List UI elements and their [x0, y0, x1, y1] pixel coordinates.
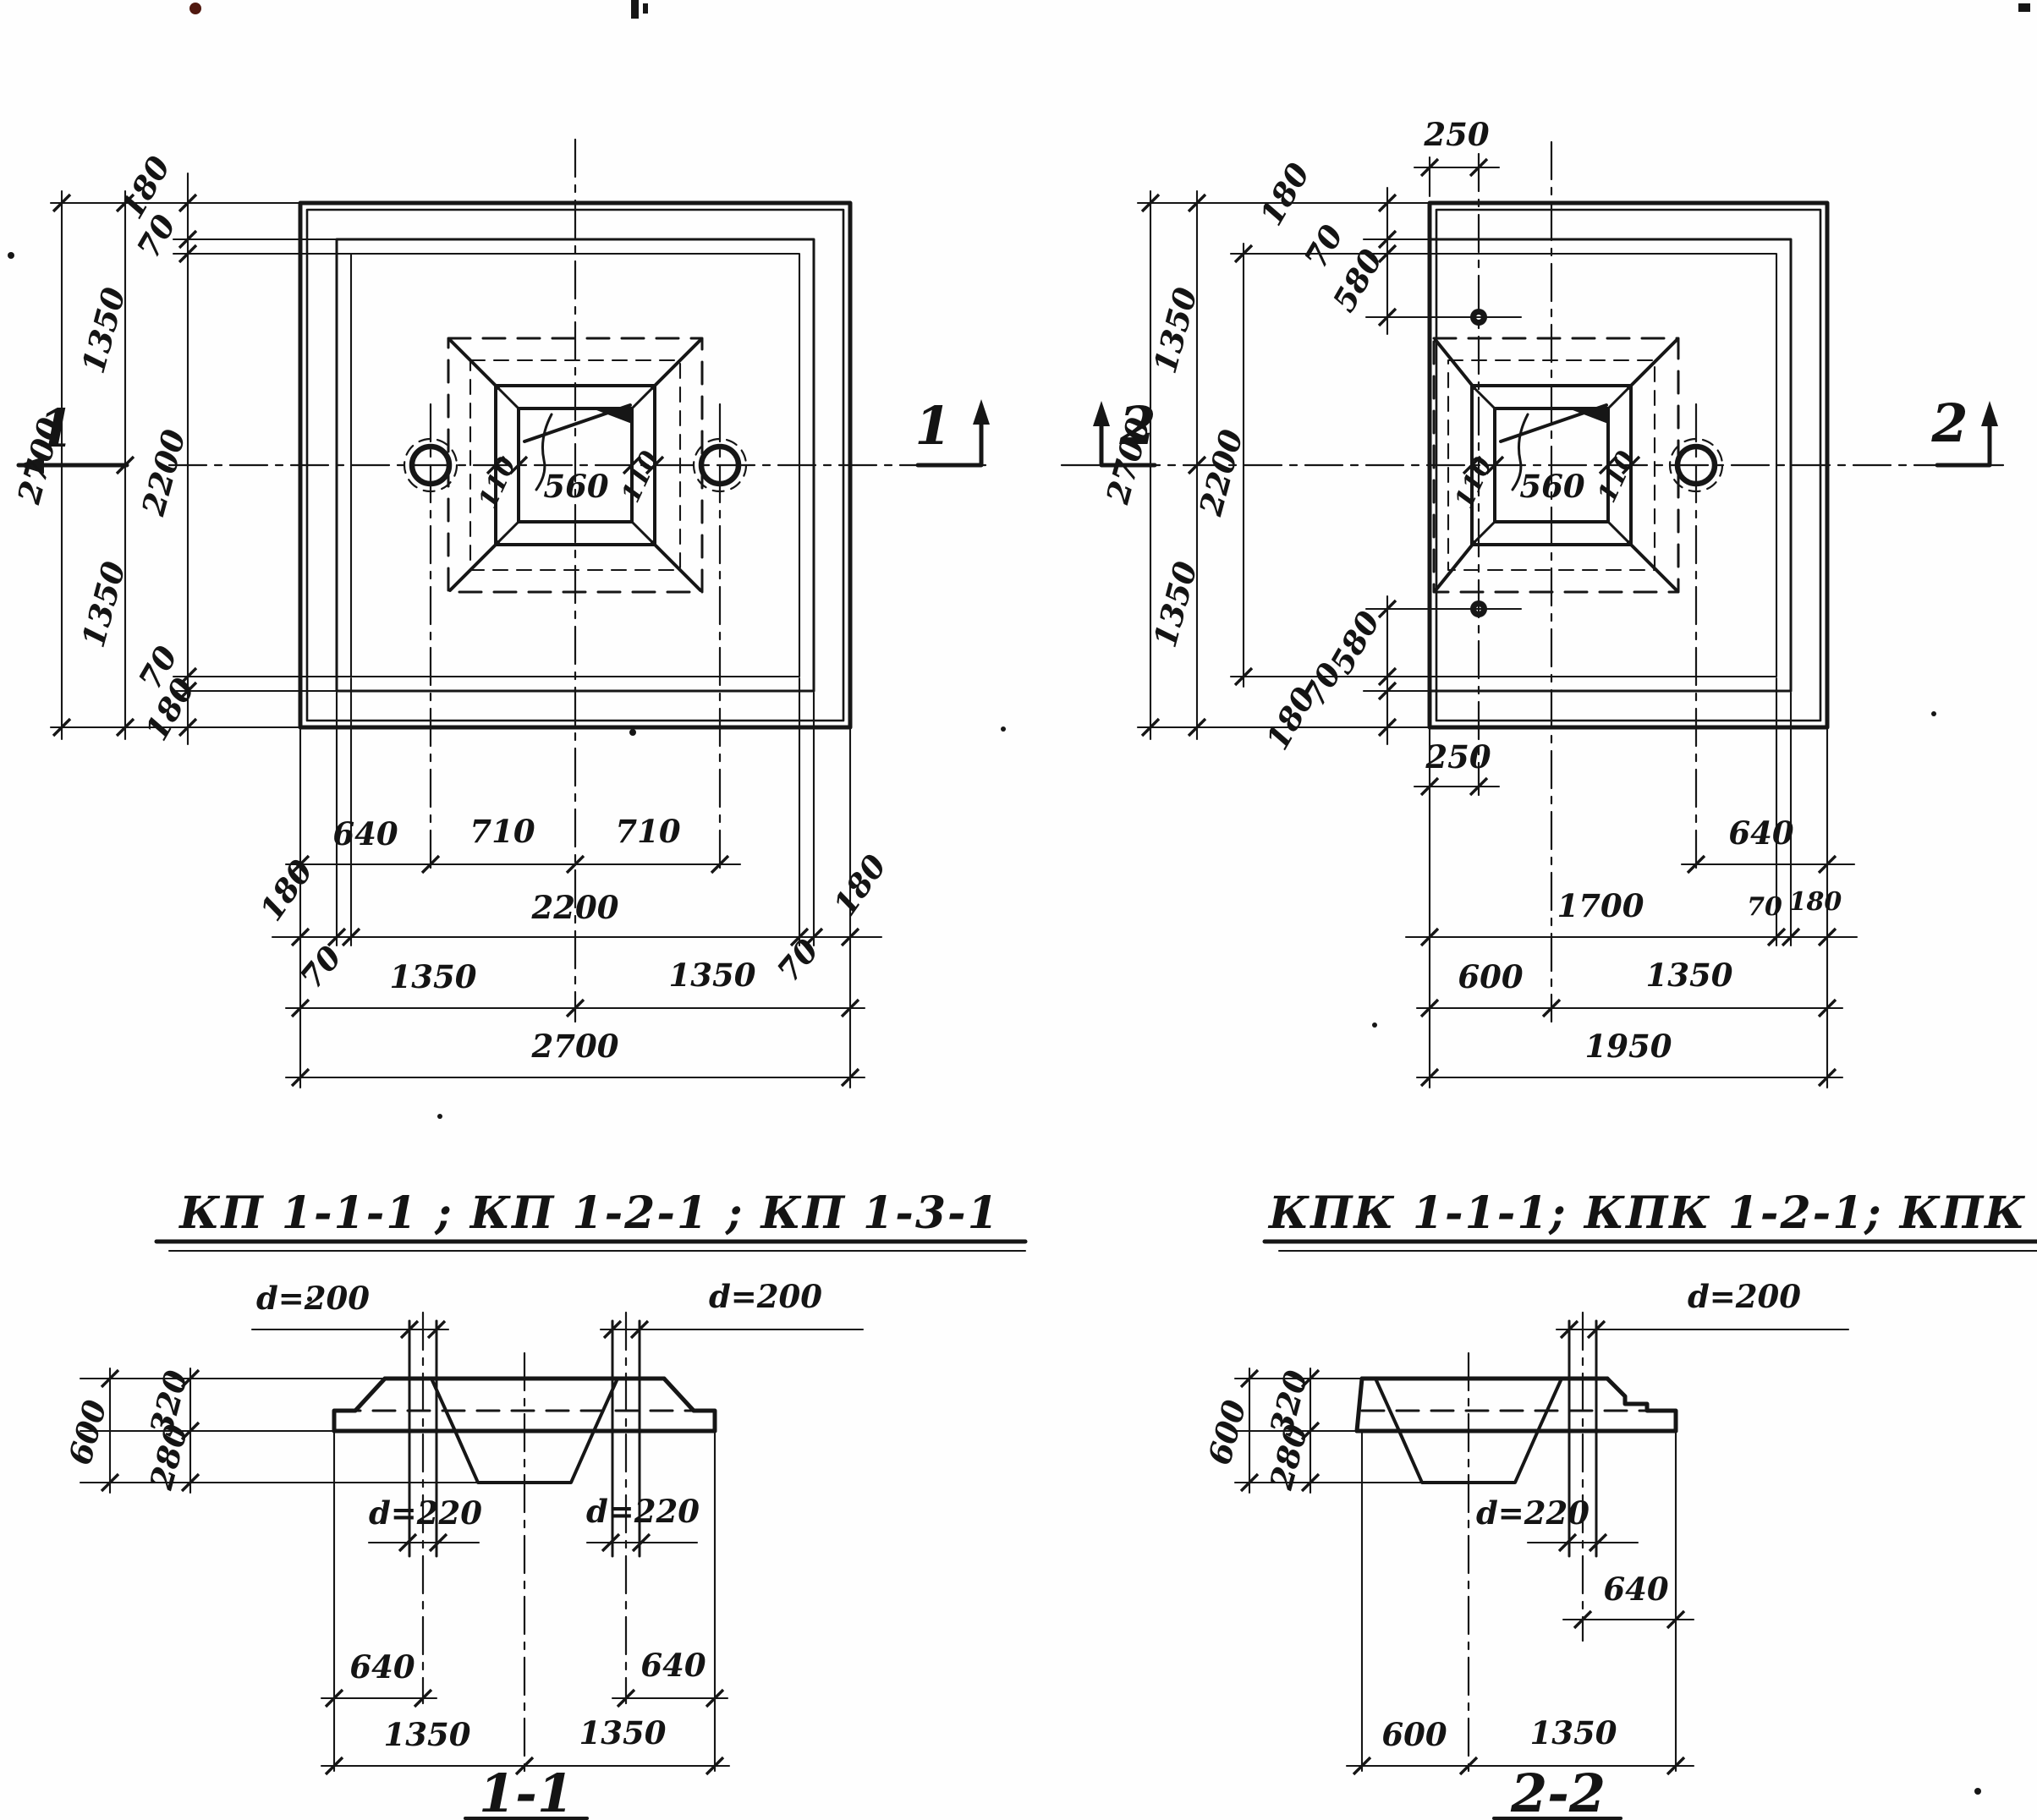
dim-socket-110-right: 110: [616, 447, 665, 507]
dim-s11-1350-left: 1350: [384, 1716, 471, 1753]
dim-s11-d220-left: d=220: [369, 1494, 482, 1532]
dim-s11-d200-left: d=200: [256, 1280, 370, 1317]
dim-kpk-600-row: 600: [1458, 958, 1523, 995]
dim-s11-d220-right: d=220: [586, 1493, 700, 1530]
dim-kpk-70-top: 70: [1297, 218, 1351, 275]
engineering-drawing-sheet: 110 560 110 1 1 180 70 2200 70 180 1350 …: [0, 0, 2037, 1820]
dim-kpk-180-top: 180: [1252, 156, 1317, 232]
dim-kpk-1350-row: 1350: [1646, 957, 1733, 994]
section-2-2-title: 2-2: [1510, 1762, 1606, 1820]
dim-s22-d220: d=220: [1476, 1494, 1590, 1532]
dim-kpk-70-row: 70: [1747, 892, 1782, 922]
dim-kpk-1350-bottom: 1350: [1146, 557, 1205, 651]
section-mark-1-right: 1: [914, 395, 990, 465]
dim-s22-600: 600: [1200, 1395, 1254, 1468]
dim-kp-1350-row-right: 1350: [669, 957, 756, 994]
dim-kp-180-row-right: 180: [826, 847, 893, 923]
section-mark-2-right-label: 2: [1930, 392, 1968, 454]
dim-socket-110-left: 110: [473, 452, 522, 513]
foundation-drawing-svg: 110 560 110 1 1 180 70 2200 70 180 1350 …: [0, 0, 2037, 1820]
dim-kpk-250-top: 250: [1423, 116, 1489, 153]
dim-kpk-560: 560: [1519, 468, 1584, 505]
section-mark-1-right-label: 1: [914, 395, 951, 457]
dim-s11-1350-right: 1350: [579, 1714, 667, 1751]
title-kpk: КПК 1-1-1; КПК 1-2-1; КПК 1-3-1: [1267, 1187, 2037, 1239]
dim-s11-640-right: 640: [640, 1647, 706, 1684]
scan-specks: [8, 0, 2030, 1795]
dim-s22-1350-row: 1350: [1530, 1714, 1617, 1751]
dim-kp-70-row-right: 70: [770, 932, 826, 989]
dim-s22-d200: d=200: [1688, 1278, 1801, 1315]
plan-kpk-centerlines: [1062, 142, 2003, 1022]
dim-s22-640: 640: [1603, 1571, 1668, 1608]
dim-kpk-640: 640: [1728, 814, 1793, 852]
section-1-1-title: 1-1: [479, 1762, 574, 1820]
section-2-2-dims: [1235, 1321, 1848, 1774]
plan-kp-bottom-dims: [272, 678, 881, 1088]
dim-s22-600-row: 600: [1381, 1716, 1447, 1753]
dim-s11-d200-right: d=200: [709, 1278, 822, 1315]
dim-kp-1350-row-left: 1350: [390, 958, 477, 995]
dim-kp-640: 640: [332, 815, 398, 852]
dim-kpk-1700: 1700: [1557, 887, 1644, 924]
dim-kpk-1350-top: 1350: [1146, 283, 1205, 377]
dim-kpk-250-bottom: 250: [1425, 738, 1491, 776]
dim-kpk-110-right: 110: [1592, 447, 1641, 507]
dim-socket-560: 560: [543, 468, 608, 505]
dim-kp-710-left: 710: [469, 813, 535, 850]
plan-kpk-bottomleft-dims: [1364, 596, 1521, 744]
dim-kpk-110-left: 110: [1449, 452, 1498, 513]
dim-kp-1350-top: 1350: [74, 283, 133, 377]
title-kp: КП 1-1-1 ; КП 1-2-1 ; КП 1-3-1: [178, 1187, 1000, 1239]
section-1-1-dims: [80, 1321, 863, 1774]
dim-kp-1350-bottom: 1350: [74, 557, 133, 651]
dim-kpk-180-row: 180: [1789, 887, 1842, 917]
dim-kp-2700-row: 2700: [531, 1028, 619, 1065]
plan-kpk-top-250: [1414, 157, 1499, 196]
dim-kpk-1950-row: 1950: [1585, 1028, 1672, 1065]
dim-kp-2700-v: 2700: [10, 414, 69, 508]
section-mark-2-right: 2: [1930, 392, 1998, 465]
dim-kpk-2200-v: 2200: [1192, 425, 1250, 520]
dim-kp-710-right: 710: [615, 813, 680, 850]
dim-kp-2200-v: 2200: [135, 425, 193, 520]
dim-s11-600: 600: [61, 1395, 114, 1468]
dim-kp-2200-row: 2200: [531, 889, 619, 926]
dim-kpk-2700-v: 2700: [1099, 414, 1157, 508]
dim-s11-640-left: 640: [349, 1648, 415, 1686]
dim-kp-180-top: 180: [113, 150, 178, 225]
plan-kpk-bottom-250: [1414, 778, 1499, 795]
